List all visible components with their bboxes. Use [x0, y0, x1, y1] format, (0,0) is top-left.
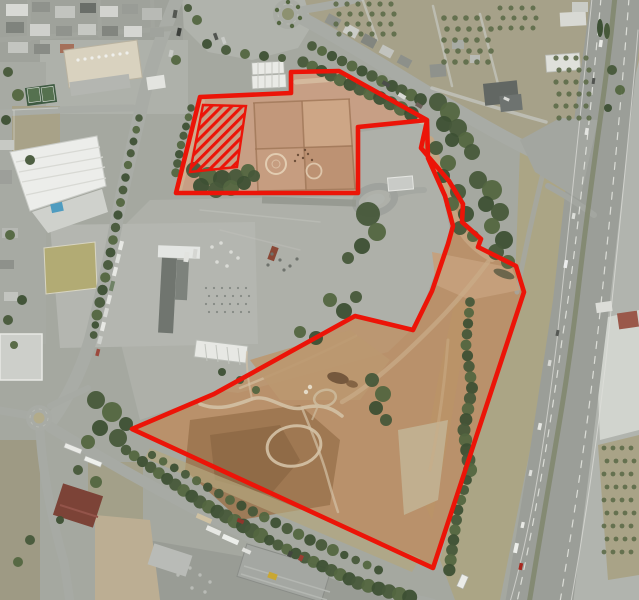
- aerial-photo: [0, 0, 639, 600]
- aerial-site-screenshot: [0, 0, 639, 600]
